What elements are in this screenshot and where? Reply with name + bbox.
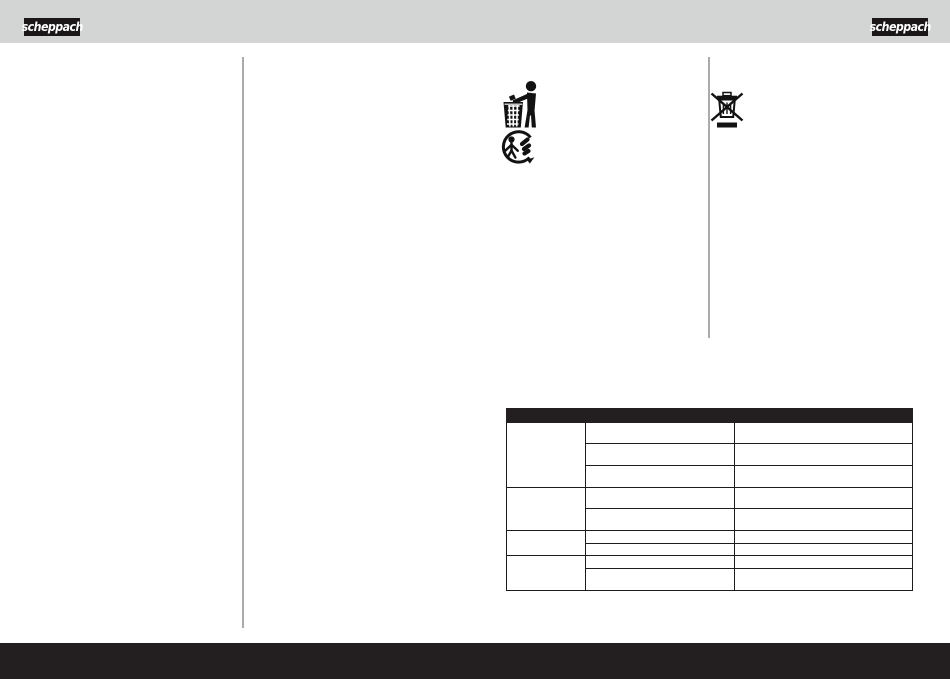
table-cell [586, 423, 735, 444]
table-cell [507, 423, 586, 488]
table-cell [586, 444, 735, 466]
table-cell [507, 531, 586, 556]
table-row [507, 488, 913, 509]
table-cell [586, 544, 735, 556]
table-cell [507, 556, 586, 591]
table-cell [586, 531, 735, 544]
table-cell [735, 569, 913, 591]
table-cell [735, 444, 913, 466]
footer-bar [0, 643, 950, 679]
table-cell [586, 569, 735, 591]
scheppach-logo-left: scheppach [24, 18, 80, 36]
scheppach-logo-right: scheppach [872, 18, 928, 36]
table-cell [507, 488, 586, 531]
triman-recycling-icon [498, 129, 538, 170]
table-cell [735, 466, 913, 488]
table-header-row [507, 409, 913, 423]
tidy-man-icon [500, 80, 546, 134]
data-table [506, 408, 913, 591]
table-cell [735, 488, 913, 509]
weee-crossed-bin-icon [710, 86, 744, 132]
table-cell [586, 509, 735, 531]
table-header-cell [507, 409, 913, 423]
header-band [0, 0, 950, 43]
table-cell [586, 466, 735, 488]
table-cell [735, 531, 913, 544]
table-cell [586, 488, 735, 509]
table-cell [735, 423, 913, 444]
table-cell [735, 556, 913, 569]
document-page: scheppach scheppach [0, 0, 950, 679]
table-row [507, 531, 913, 544]
table-cell [586, 556, 735, 569]
column-divider-left [242, 57, 244, 628]
logo-text: scheppach [21, 21, 82, 33]
table-cell [735, 544, 913, 556]
table-row [507, 423, 913, 444]
table-cell [735, 509, 913, 531]
logo-text: scheppach [869, 21, 930, 33]
table-row [507, 556, 913, 569]
